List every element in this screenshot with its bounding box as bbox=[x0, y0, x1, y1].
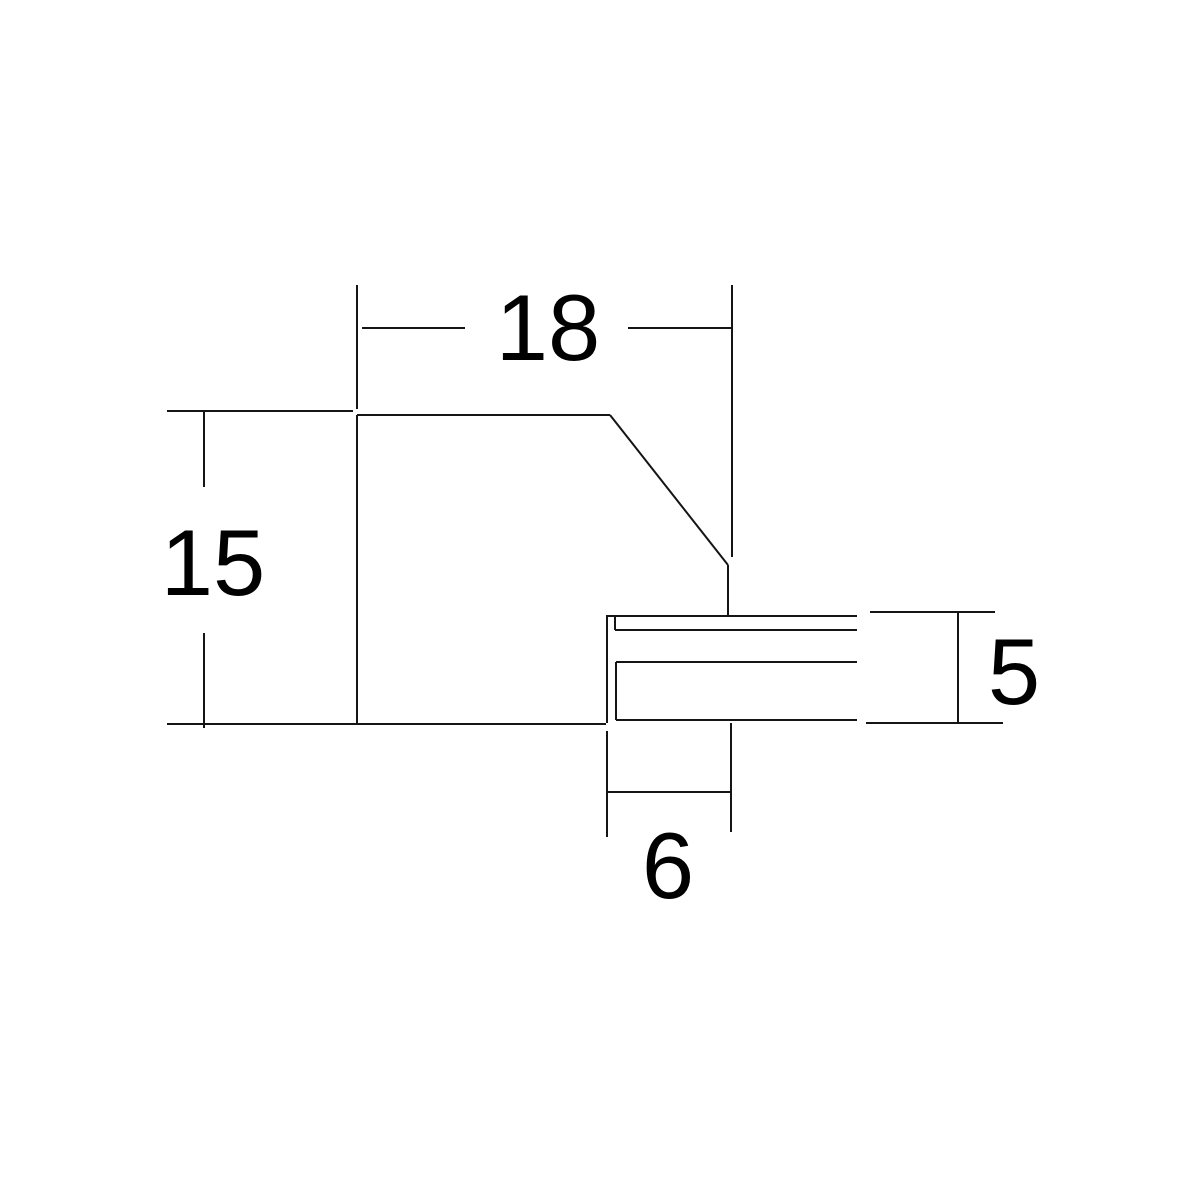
technical-drawing: 181556 bbox=[0, 0, 1200, 1200]
dim-label-6: 6 bbox=[642, 813, 694, 918]
dim-label-15: 15 bbox=[161, 510, 266, 615]
profile-chamfer-edge bbox=[610, 415, 728, 565]
dim-label-18: 18 bbox=[496, 275, 601, 380]
dim-label-5: 5 bbox=[988, 619, 1040, 724]
drawing-page: 181556 bbox=[0, 0, 1200, 1200]
